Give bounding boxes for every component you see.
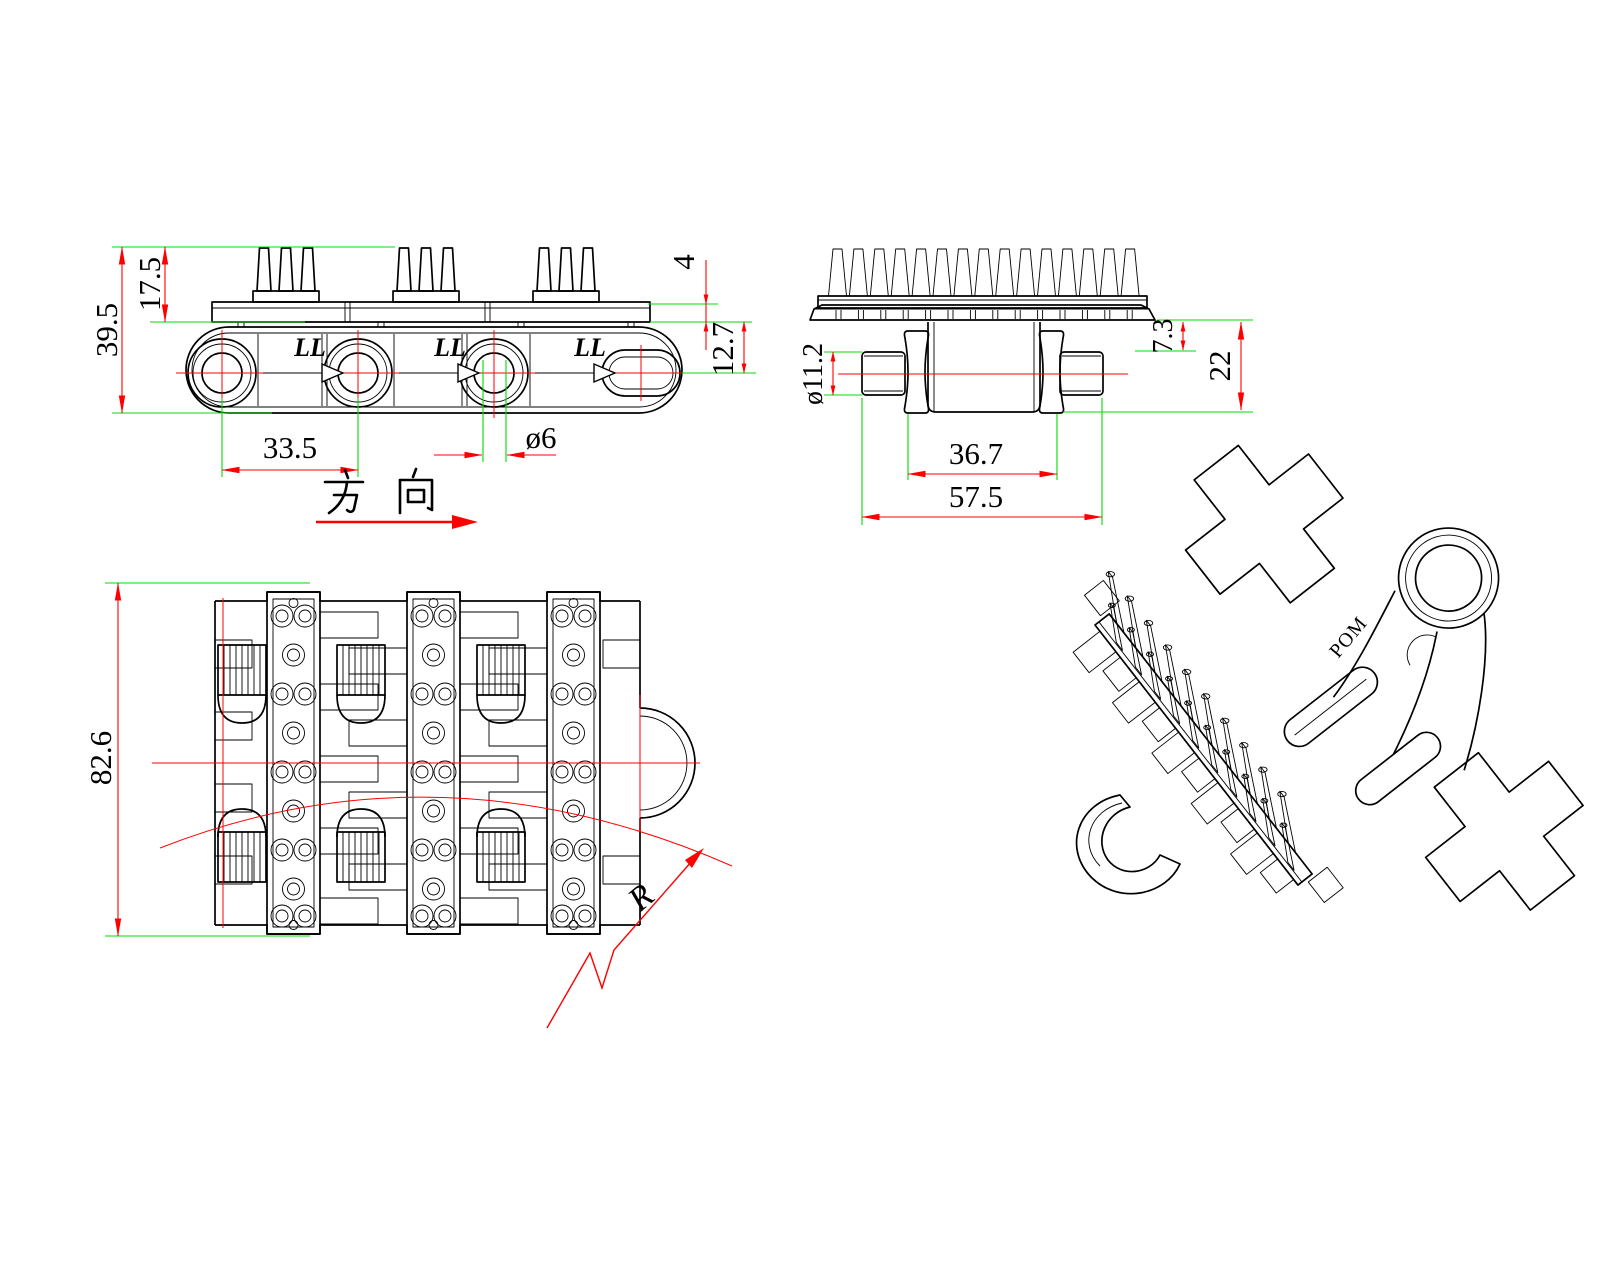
view-isometric: POM: [1073, 363, 1600, 964]
dim-plate-thickness: 4: [666, 254, 701, 270]
end-dimensions: ø11.2 7.3 22 36.7 57.5: [798, 319, 1253, 526]
dim-pitch: 33.5: [263, 430, 317, 465]
iso-cross-tab-bottom: [1395, 722, 1600, 941]
iso-plate-edge-2: [1350, 727, 1446, 811]
dim-pin-diameter: ø11.2: [798, 343, 829, 405]
dim-hinge-span: 36.7: [949, 436, 1003, 471]
direction-glyph-fang: [325, 470, 363, 513]
view-end: ø11.2 7.3 22 36.7 57.5: [798, 249, 1253, 525]
iso-hook: [1077, 795, 1180, 894]
end-plate: [810, 296, 1155, 320]
flow-label: LL: [573, 333, 606, 362]
dim-module-width: 82.6: [83, 731, 118, 785]
flow-arrow-icon: [594, 364, 615, 382]
dim-overall-height: 39.5: [89, 303, 124, 357]
side-top-plate: [212, 302, 650, 327]
side-spike-groups: [253, 248, 599, 302]
flow-label: LL: [433, 333, 466, 362]
drawing-canvas: LL LL LL 39.5 17.5 33.5 ø6: [0, 0, 1600, 1280]
plan-dimensions: 82.6 R: [83, 583, 704, 1028]
iso-part-link-module: POM: [1126, 363, 1600, 964]
dim-plate-to-center: 12.7: [705, 322, 740, 376]
dim-bend-radius: R: [621, 877, 662, 919]
end-hinge-body: [838, 322, 1128, 413]
material-marking: POM: [1325, 612, 1372, 662]
dim-spike-height: 17.5: [132, 257, 167, 311]
iso-ring-outer: [1378, 508, 1518, 648]
view-plan: 82.6 R: [83, 583, 732, 1028]
radius-leader: [547, 853, 699, 1028]
dim-body-height: 22: [1202, 351, 1237, 382]
dim-hole-diameter: ø6: [526, 420, 557, 455]
drawing-sheet: LL LL LL 39.5 17.5 33.5 ø6: [0, 0, 1600, 1280]
dim-overall-width: 57.5: [949, 479, 1003, 514]
iso-part-pin-module: [1073, 571, 1343, 902]
side-flow-arrows: LL LL LL: [263, 333, 615, 382]
direction-arrow-icon: [452, 515, 478, 529]
end-barrel-left: [904, 331, 928, 413]
end-spike-row: [829, 249, 1140, 296]
iso-cross-tab-top: [1155, 415, 1374, 634]
view-side: LL LL LL 39.5 17.5 33.5 ø6: [89, 247, 756, 529]
direction-label: [316, 469, 478, 529]
dim-edge-drop: 7.3: [1148, 319, 1179, 354]
direction-glyph-xiang: [400, 469, 432, 513]
iso-ring-inner: [1402, 532, 1495, 625]
flow-label: LL: [293, 333, 326, 362]
plan-comb-teeth: [215, 612, 640, 924]
